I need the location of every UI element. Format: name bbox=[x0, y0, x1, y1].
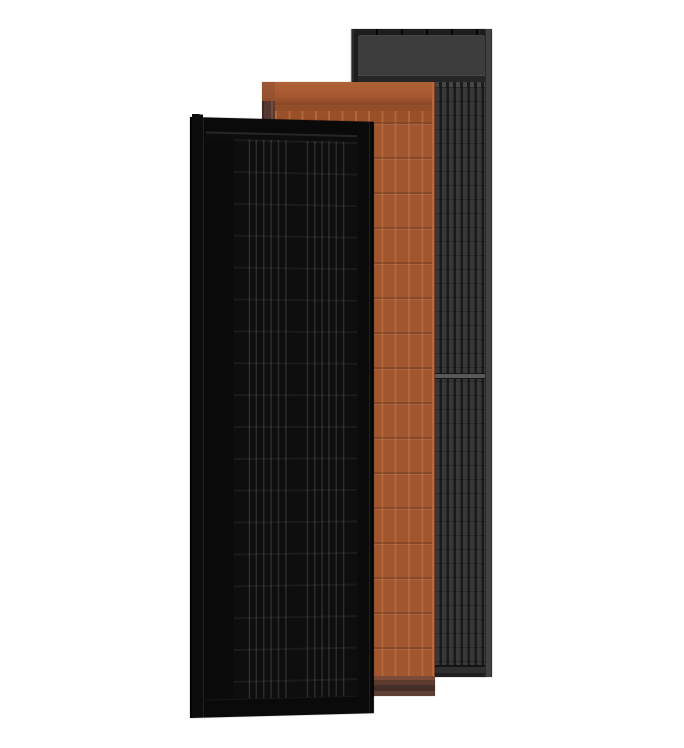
terracotta-panel-corner bbox=[262, 82, 275, 101]
black-panel-right-frame bbox=[357, 121, 373, 713]
black-panel-top-frame bbox=[206, 117, 374, 142]
black-panel-left-frame bbox=[190, 117, 206, 718]
solar-panel-black bbox=[190, 117, 374, 718]
product-image-canvas bbox=[0, 0, 684, 748]
black-panel-cell-grid bbox=[234, 139, 358, 699]
terracotta-panel-top-band bbox=[262, 82, 435, 103]
gray-panel-right-frame bbox=[485, 29, 492, 677]
gray-panel-header-plate bbox=[358, 35, 485, 76]
terracotta-panel-seam-band bbox=[262, 103, 435, 111]
black-panel-bottom-frame bbox=[206, 696, 357, 718]
terracotta-panel-right-edge bbox=[432, 82, 435, 676]
